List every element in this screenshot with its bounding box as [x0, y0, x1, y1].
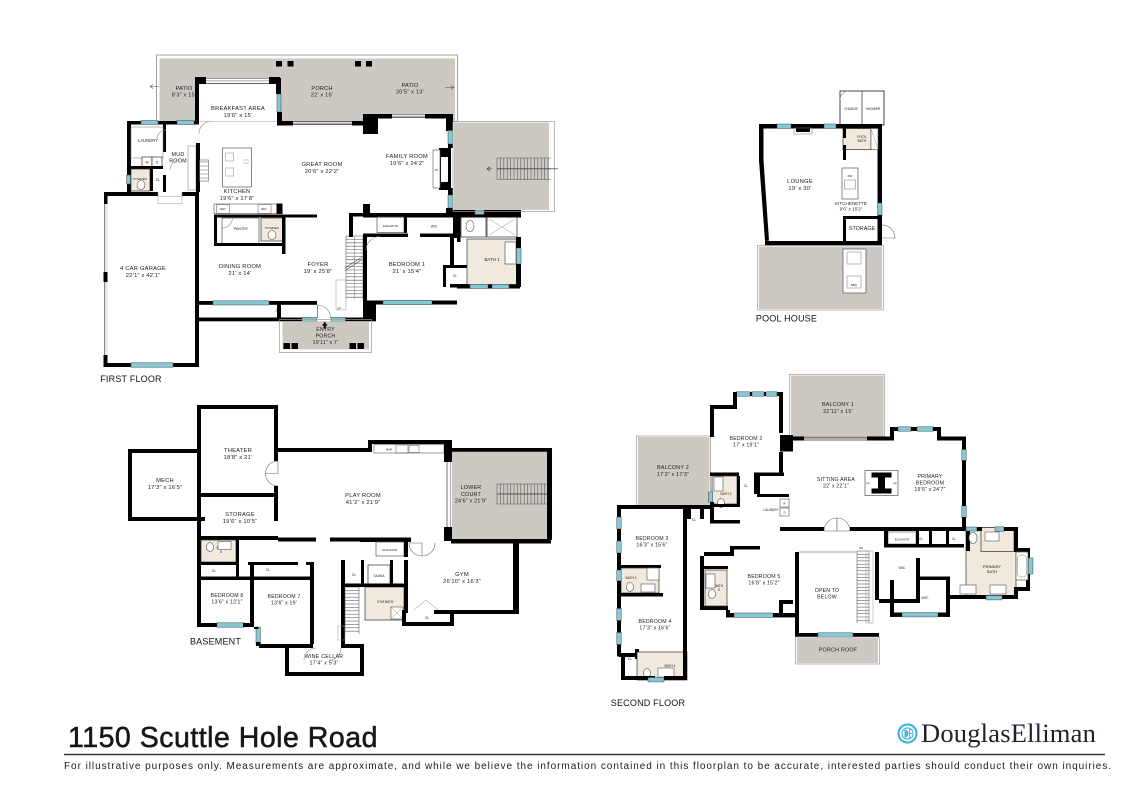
svg-text:BATH 1: BATH 1: [484, 257, 500, 262]
svg-text:SECOND FLOOR: SECOND FLOOR: [611, 698, 686, 708]
svg-text:D: D: [784, 511, 786, 515]
svg-text:PRIMARYBEDROOM19’6” x 24’7”: PRIMARYBEDROOM19’6” x 24’7”: [914, 474, 945, 493]
svg-text:PORCH ROOF: PORCH ROOF: [819, 648, 858, 654]
svg-text:BALCONY 122’11” x 15’: BALCONY 122’11” x 15’: [822, 402, 854, 415]
svg-text:For illustrative purposes only: For illustrative purposes only. Measurem…: [64, 761, 1112, 772]
svg-text:FAMILY ROOM19’6” x 24’2”: FAMILY ROOM19’6” x 24’2”: [386, 154, 428, 167]
svg-text:POOL HOUSE: POOL HOUSE: [756, 314, 817, 324]
svg-text:WIC: WIC: [899, 566, 906, 570]
svg-text:DN: DN: [859, 546, 863, 550]
svg-text:CL: CL: [212, 569, 216, 573]
svg-text:POOLBATH: POOLBATH: [857, 135, 867, 143]
svg-text:ENTRYPORCH19’11” x 7’: ENTRYPORCH19’11” x 7’: [313, 327, 339, 346]
svg-text:FOYER19’ x 25’8”: FOYER19’ x 25’8”: [304, 262, 333, 275]
svg-text:STORAGE19’6” x 10’5”: STORAGE19’6” x 10’5”: [223, 512, 258, 525]
svg-text:BALCONY 217’3” x 17’3”: BALCONY 217’3” x 17’3”: [657, 465, 689, 478]
svg-text:1150 Scuttle Hole Road: 1150 Scuttle Hole Road: [68, 722, 378, 754]
svg-text:CHANGE: CHANGE: [844, 107, 858, 111]
svg-text:CL: CL: [692, 518, 696, 522]
svg-text:BEDROOM 316’3” x 15’6”: BEDROOM 316’3” x 15’6”: [636, 536, 669, 548]
svg-text:WINE CELLAR17’4” x 5’3”: WINE CELLAR17’4” x 5’3”: [305, 654, 344, 667]
svg-text:SAUNA: SAUNA: [374, 574, 386, 578]
svg-text:BEDROOM 417’3” x 16’6”: BEDROOM 417’3” x 16’6”: [639, 619, 672, 631]
svg-text:THEATER18’8” x 21’: THEATER18’8” x 21’: [224, 448, 253, 461]
svg-text:KITCHENETTE9’6” x 15’2”: KITCHENETTE9’6” x 15’2”: [835, 201, 867, 212]
svg-text:DouglasElliman: DouglasElliman: [921, 718, 1096, 748]
svg-text:GYM BATH: GYM BATH: [377, 600, 394, 604]
svg-text:GREAT ROOM20’6” x 22’2”: GREAT ROOM20’6” x 22’2”: [301, 162, 342, 175]
svg-text:UP: UP: [337, 307, 341, 311]
svg-text:RET: RET: [220, 207, 226, 211]
svg-text:RET: RET: [261, 207, 267, 211]
svg-text:BEDROOM 217’ x 19’1”: BEDROOM 217’ x 19’1”: [730, 436, 763, 448]
svg-text:OPEN TOBELOW: OPEN TOBELOW: [815, 588, 840, 600]
svg-text:PLAY ROOM41’2” x 21’9”: PLAY ROOM41’2” x 21’9”: [345, 493, 381, 506]
svg-text:POWDER: POWDER: [265, 226, 279, 230]
svg-text:FP: FP: [866, 482, 870, 486]
svg-text:BEDROOM 713’6” x 19’: BEDROOM 713’6” x 19’: [268, 594, 301, 606]
svg-text:CL: CL: [425, 616, 429, 620]
svg-text:BEDROOM 121’ x 15’4”: BEDROOM 121’ x 15’4”: [389, 262, 426, 275]
svg-text:BATH 2: BATH 2: [721, 492, 732, 496]
svg-text:PORCH22’ x 15’: PORCH22’ x 15’: [311, 86, 333, 99]
svg-text:LOUNGE19’ x 30’: LOUNGE19’ x 30’: [787, 179, 813, 192]
svg-text:W: W: [145, 161, 148, 165]
svg-text:CL: CL: [156, 178, 160, 182]
svg-text:BATH 4: BATH 4: [665, 664, 676, 668]
svg-text:CL: CL: [352, 573, 356, 577]
svg-text:CL: CL: [453, 274, 457, 278]
svg-text:WIC: WIC: [431, 225, 438, 229]
svg-text:CL: CL: [919, 537, 923, 541]
svg-text:CL: CL: [952, 537, 956, 541]
svg-text:CL: CL: [628, 657, 632, 661]
svg-text:PANTRY: PANTRY: [234, 227, 249, 231]
svg-text:FP: FP: [435, 168, 439, 172]
svg-text:KITCHEN19’6” x 17’8”: KITCHEN19’6” x 17’8”: [220, 189, 255, 202]
svg-text:BBQ: BBQ: [851, 283, 858, 287]
svg-text:BATH 3: BATH 3: [626, 576, 637, 580]
svg-text:LAUNDRY: LAUNDRY: [763, 508, 779, 512]
svg-text:BEDROOM 516’8” x 15’2”: BEDROOM 516’8” x 15’2”: [748, 574, 781, 586]
svg-text:BEDROOM 813’6” x 12’1”: BEDROOM 813’6” x 12’1”: [211, 593, 244, 605]
svg-text:SHOWER: SHOWER: [866, 107, 881, 111]
svg-text:CL: CL: [275, 309, 279, 313]
svg-text:MUDROOM: MUDROOM: [169, 152, 187, 164]
svg-text:CL: CL: [744, 484, 748, 488]
svg-text:BASEMENT: BASEMENT: [190, 637, 241, 647]
svg-text:WIC: WIC: [922, 596, 929, 600]
svg-text:ELEVATOR: ELEVATOR: [383, 548, 398, 552]
svg-text:CL: CL: [266, 568, 270, 572]
svg-text:BAR: BAR: [386, 448, 392, 452]
svg-text:LAUNDRY: LAUNDRY: [138, 138, 158, 143]
svg-text:ELEVATOR: ELEVATOR: [895, 538, 909, 542]
svg-text:FP: FP: [893, 482, 897, 486]
svg-text:4 CAR GARAGE22’1” x 42’1”: 4 CAR GARAGE22’1” x 42’1”: [120, 266, 166, 279]
svg-text:FIRST FLOOR: FIRST FLOOR: [100, 374, 162, 384]
svg-text:DW: DW: [848, 174, 853, 178]
svg-text:STORAGE: STORAGE: [849, 226, 876, 232]
svg-text:ELEVATOR: ELEVATOR: [383, 224, 398, 228]
